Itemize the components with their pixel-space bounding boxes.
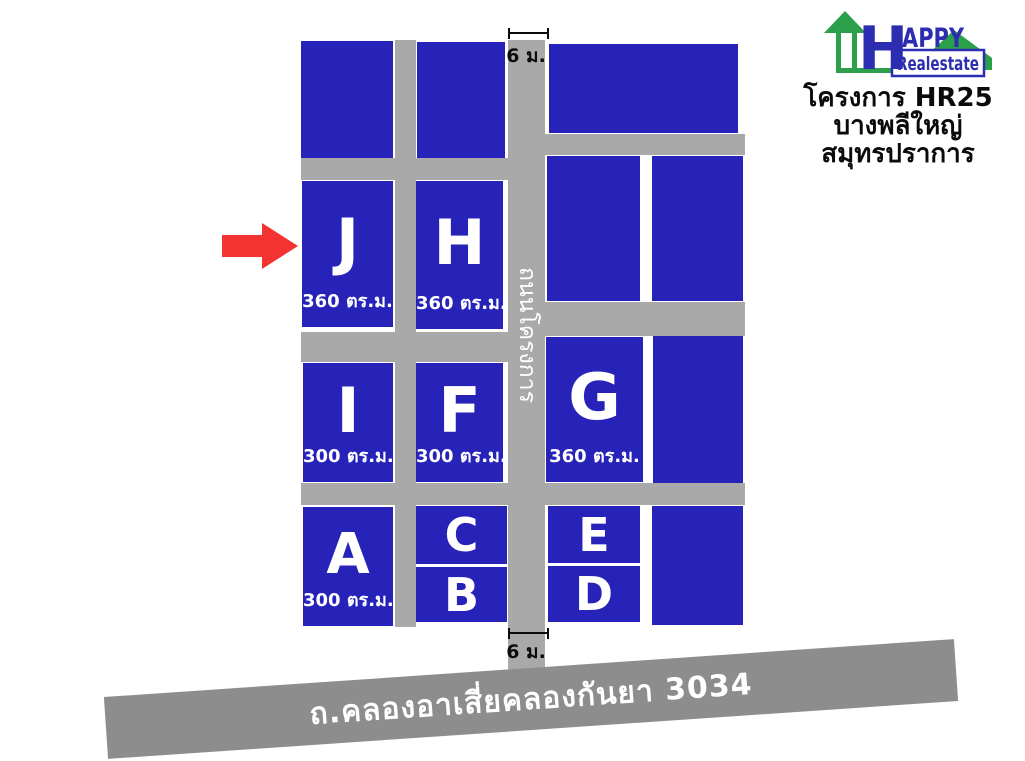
road-width-label-bottom: 6 ม. xyxy=(504,637,548,667)
plot-A-area: 300 ตร.ม. xyxy=(303,585,393,614)
road-cross-right-1 xyxy=(545,134,745,155)
site-plan-flyer: ถนนโครงการ 6 ม. 6 ม. J 360 ตร.ม. H 360 ต… xyxy=(0,0,1025,761)
plot-I: I 300 ตร.ม. xyxy=(303,363,393,482)
road-cross-left-1 xyxy=(301,158,508,180)
internal-road-label: ถนนโครงการ xyxy=(509,267,545,403)
plot-unlabeled-bottom-right xyxy=(652,506,743,625)
plot-unlabeled-mid-right-1 xyxy=(547,156,640,301)
highlight-arrow-icon xyxy=(218,218,302,272)
plot-C-letter: C xyxy=(445,512,479,558)
plot-J-letter: J xyxy=(336,211,359,273)
road-cross-left-2 xyxy=(301,332,508,362)
plot-I-letter: I xyxy=(336,380,359,442)
plot-unlabeled-mid-right-2 xyxy=(652,156,743,301)
plot-F-letter: F xyxy=(438,380,480,442)
project-district: บางพลีใหญ่ xyxy=(786,112,1010,140)
plot-C: C xyxy=(416,506,507,564)
plot-unlabeled-right-3 xyxy=(653,336,743,483)
happy-realestate-logo: H APPY Realestate xyxy=(812,6,1002,84)
logo-word-appy: APPY xyxy=(902,23,964,54)
project-title: โครงการ HR25 xyxy=(786,84,1010,112)
plot-E-letter: E xyxy=(578,512,609,558)
road-cross-full xyxy=(301,483,745,505)
dimension-bracket-top xyxy=(508,28,549,39)
logo-word-realestate: Realestate xyxy=(897,53,979,75)
plot-F-area: 300 ตร.ม. xyxy=(416,441,503,470)
plot-E: E xyxy=(548,506,640,563)
road-cross-right-2 xyxy=(545,302,745,336)
plot-G-area: 360 ตร.ม. xyxy=(546,441,643,470)
plot-G: G 360 ตร.ม. xyxy=(546,337,643,482)
plot-B-letter: B xyxy=(444,572,479,618)
highway-label: ถ.คลองอาเสี่ยคลองกันยา 3034 xyxy=(308,660,754,737)
plot-D: D xyxy=(548,566,640,622)
plot-F: F 300 ตร.ม. xyxy=(416,363,503,482)
plot-H: H 360 ตร.ม. xyxy=(416,181,503,329)
plot-H-area: 360 ตร.ม. xyxy=(416,288,503,317)
plot-J-area: 360 ตร.ม. xyxy=(302,286,393,315)
plot-H-letter: H xyxy=(434,212,486,274)
plot-I-area: 300 ตร.ม. xyxy=(303,441,393,470)
plot-unlabeled-top-left-2 xyxy=(417,42,505,158)
plot-G-letter: G xyxy=(568,366,621,430)
plot-B: B xyxy=(416,567,507,622)
plot-D-letter: D xyxy=(575,571,613,617)
road-width-label-top: 6 ม. xyxy=(504,41,548,71)
plot-J: J 360 ตร.ม. xyxy=(302,181,393,327)
project-heading: โครงการ HR25 บางพลีใหญ่ สมุทรปราการ xyxy=(786,84,1010,168)
plot-unlabeled-top-right-wide xyxy=(549,44,738,133)
plot-A: A 300 ตร.ม. xyxy=(303,507,393,626)
plot-unlabeled-top-left-1 xyxy=(301,41,393,158)
plot-A-letter: A xyxy=(326,527,369,583)
project-province: สมุทรปราการ xyxy=(786,140,1010,168)
